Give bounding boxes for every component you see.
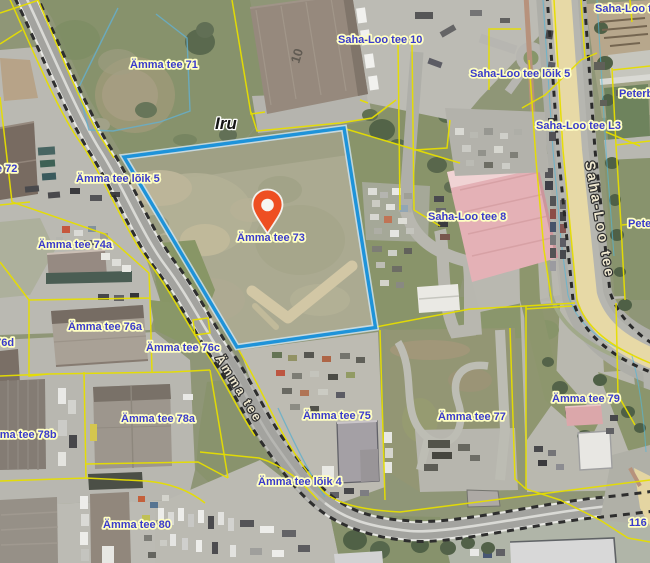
svg-text:Pete: Pete (628, 218, 650, 230)
svg-text:e 76d: e 76d (0, 337, 14, 349)
svg-text:Ämma tee 75: Ämma tee 75 (303, 409, 371, 422)
svg-text:Ämma tee 71: Ämma tee 71 (130, 58, 198, 71)
svg-text:Ämma tee lõik 5: Ämma tee lõik 5 (76, 172, 160, 185)
svg-text:Ämma tee 80: Ämma tee 80 (103, 518, 171, 531)
svg-text:Saha-Loo tee lõik 5: Saha-Loo tee lõik 5 (470, 68, 570, 80)
svg-text:Saha-Loo tee L3: Saha-Loo tee L3 (536, 120, 621, 132)
svg-text:e 72: e 72 (0, 163, 17, 175)
svg-text:Iru: Iru (215, 114, 237, 133)
svg-text:Ämma tee 76c: Ämma tee 76c (146, 341, 220, 354)
svg-text:Peterb: Peterb (619, 88, 650, 100)
svg-text:Saha-Loo te: Saha-Loo te (595, 3, 650, 15)
svg-text:Ämma tee 78a: Ämma tee 78a (121, 412, 196, 425)
svg-text:Ämma tee 77: Ämma tee 77 (438, 410, 506, 423)
svg-text:116: 116 (629, 517, 647, 529)
svg-text:Ämma tee 78b: Ämma tee 78b (0, 428, 57, 441)
svg-text:Saha-Loo tee 8: Saha-Loo tee 8 (428, 211, 506, 223)
svg-text:Ämma tee 79: Ämma tee 79 (552, 392, 620, 405)
svg-text:Ämma tee 74a: Ämma tee 74a (38, 238, 113, 251)
svg-text:Ämma tee 76a: Ämma tee 76a (68, 320, 143, 333)
svg-text:Ämma tee 73: Ämma tee 73 (237, 231, 305, 244)
svg-text:Ämma tee lõik 4: Ämma tee lõik 4 (258, 475, 343, 488)
svg-text:Saha-Loo tee 10: Saha-Loo tee 10 (338, 34, 422, 46)
